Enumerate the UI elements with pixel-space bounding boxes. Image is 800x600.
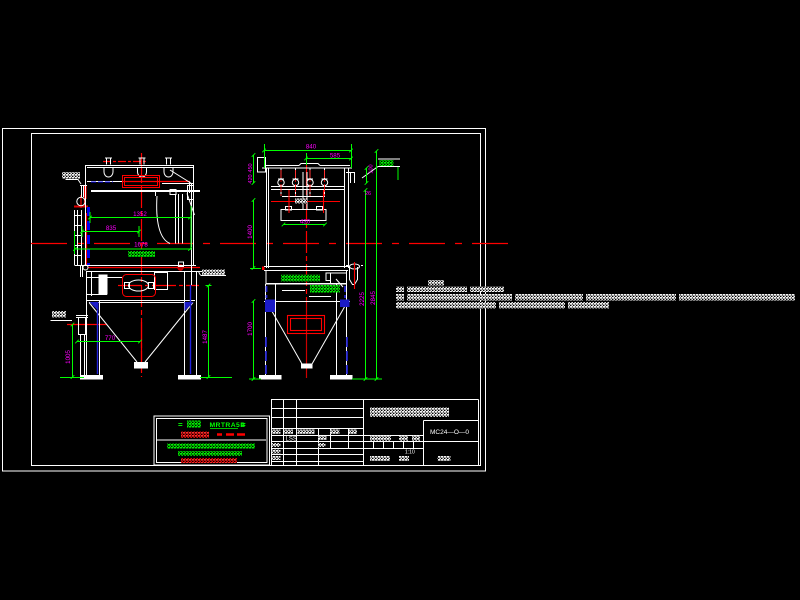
svg-text:2845: 2845 (370, 291, 377, 305)
svg-text:840: 840 (306, 144, 317, 151)
svg-text:1678: 1678 (134, 242, 148, 249)
svg-text:420: 420 (248, 174, 254, 183)
svg-text:1400: 1400 (247, 225, 254, 239)
svg-text:LSS: LSS (286, 437, 297, 443)
svg-text:1005: 1005 (65, 350, 72, 364)
svg-text:100: 100 (369, 164, 375, 173)
svg-text:2225: 2225 (359, 292, 366, 306)
svg-text:1700: 1700 (247, 322, 254, 336)
svg-text:430: 430 (300, 219, 311, 226)
svg-text:=: = (178, 421, 183, 430)
svg-text:835: 835 (106, 225, 117, 232)
svg-text:450: 450 (248, 163, 254, 172)
svg-text:770: 770 (105, 335, 116, 342)
svg-text:MRTRA5B: MRTRA5B (210, 422, 246, 429)
svg-text:26: 26 (365, 191, 371, 197)
svg-text:585: 585 (330, 153, 341, 160)
svg-text:1:10: 1:10 (405, 450, 415, 456)
svg-text:1487: 1487 (202, 330, 209, 344)
svg-text:MC24—O—0: MC24—O—0 (430, 429, 469, 436)
svg-text:1352: 1352 (133, 211, 147, 218)
